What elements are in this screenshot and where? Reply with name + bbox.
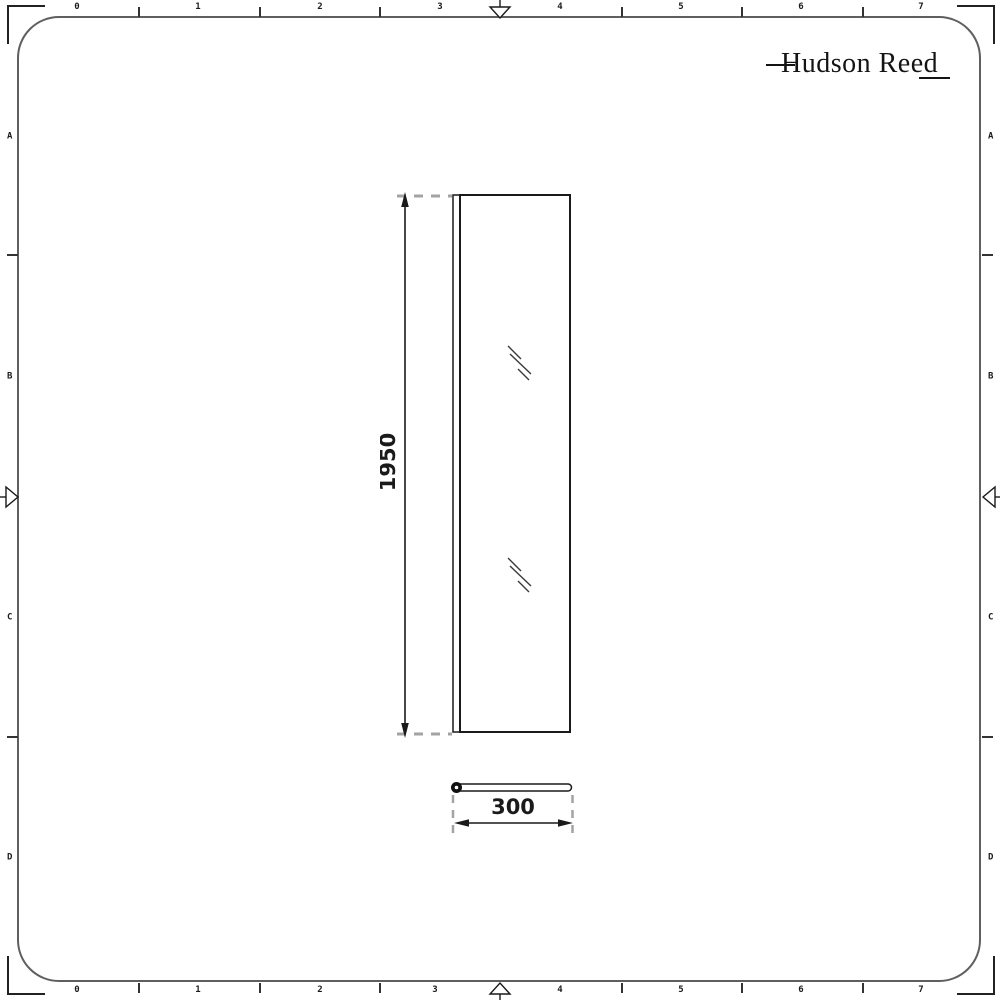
ruler-number-bottom: 7 (918, 986, 923, 995)
ruler-letter-right: C (988, 614, 993, 623)
ruler-letter-left: D (7, 854, 12, 863)
ruler-number-top: 5 (678, 3, 683, 12)
ruler-number-bottom: 5 (678, 986, 683, 995)
arrowhead-up-icon (401, 192, 409, 207)
height-dimension-label: 1950 (380, 433, 400, 491)
ruler-tick (379, 7, 381, 17)
ruler-number-top: 2 (317, 3, 322, 12)
ruler-letter-left: C (7, 614, 12, 623)
ruler-number-top: 4 (557, 3, 562, 12)
ruler-letter-right: D (988, 854, 993, 863)
ruler-number-top: 6 (798, 3, 803, 12)
ruler-tick (7, 254, 18, 256)
ruler-tick (259, 983, 261, 993)
technical-drawing-sheet: 0 1 2 3 4 5 6 7 0 1 2 3 4 5 6 7 A B C D … (0, 0, 1000, 1000)
ruler-tick (379, 983, 381, 993)
ruler-tick (7, 736, 18, 738)
ruler-tick (741, 7, 743, 17)
ruler-number-top: 3 (437, 3, 442, 12)
ruler-tick (862, 7, 864, 17)
ruler-number-top: 0 (74, 3, 79, 12)
ruler-letter-right: A (988, 133, 993, 142)
ruler-letter-left: A (7, 133, 12, 142)
centering-arrow-bottom-icon (486, 980, 514, 1000)
ruler-tick (862, 983, 864, 993)
ruler-number-top: 1 (195, 3, 200, 12)
ruler-tick (138, 7, 140, 17)
ruler-number-bottom: 3 (432, 986, 437, 995)
logo-tail-line (919, 77, 950, 79)
centering-arrow-top-icon (486, 0, 514, 20)
product-drawing: 1950 300 (380, 180, 620, 840)
ruler-tick (138, 983, 140, 993)
ruler-number-bottom: 1 (195, 986, 200, 995)
glass-panel-front (460, 195, 570, 732)
ruler-number-bottom: 0 (74, 986, 79, 995)
glass-panel-plan (456, 784, 572, 791)
width-dimension-label: 300 (491, 795, 535, 819)
wall-profile-front (453, 195, 460, 732)
ruler-tick (741, 983, 743, 993)
ruler-tick (621, 7, 623, 17)
ruler-number-bottom: 4 (557, 986, 562, 995)
ruler-tick (982, 736, 993, 738)
ruler-letter-left: B (7, 373, 12, 382)
ruler-tick (982, 254, 993, 256)
arrowhead-right-icon (558, 819, 573, 827)
wall-profile-plan-center (455, 786, 459, 790)
ruler-number-bottom: 2 (317, 986, 322, 995)
arrowhead-down-icon (401, 723, 409, 738)
brand-logo: Hudson Reed (781, 49, 938, 79)
arrowhead-left-icon (454, 819, 469, 827)
ruler-tick (259, 7, 261, 17)
centering-arrow-left-icon (0, 483, 20, 511)
ruler-letter-right: B (988, 373, 993, 382)
centering-arrow-right-icon (980, 483, 1000, 511)
ruler-number-bottom: 6 (798, 986, 803, 995)
ruler-tick (621, 983, 623, 993)
ruler-number-top: 7 (918, 3, 923, 12)
